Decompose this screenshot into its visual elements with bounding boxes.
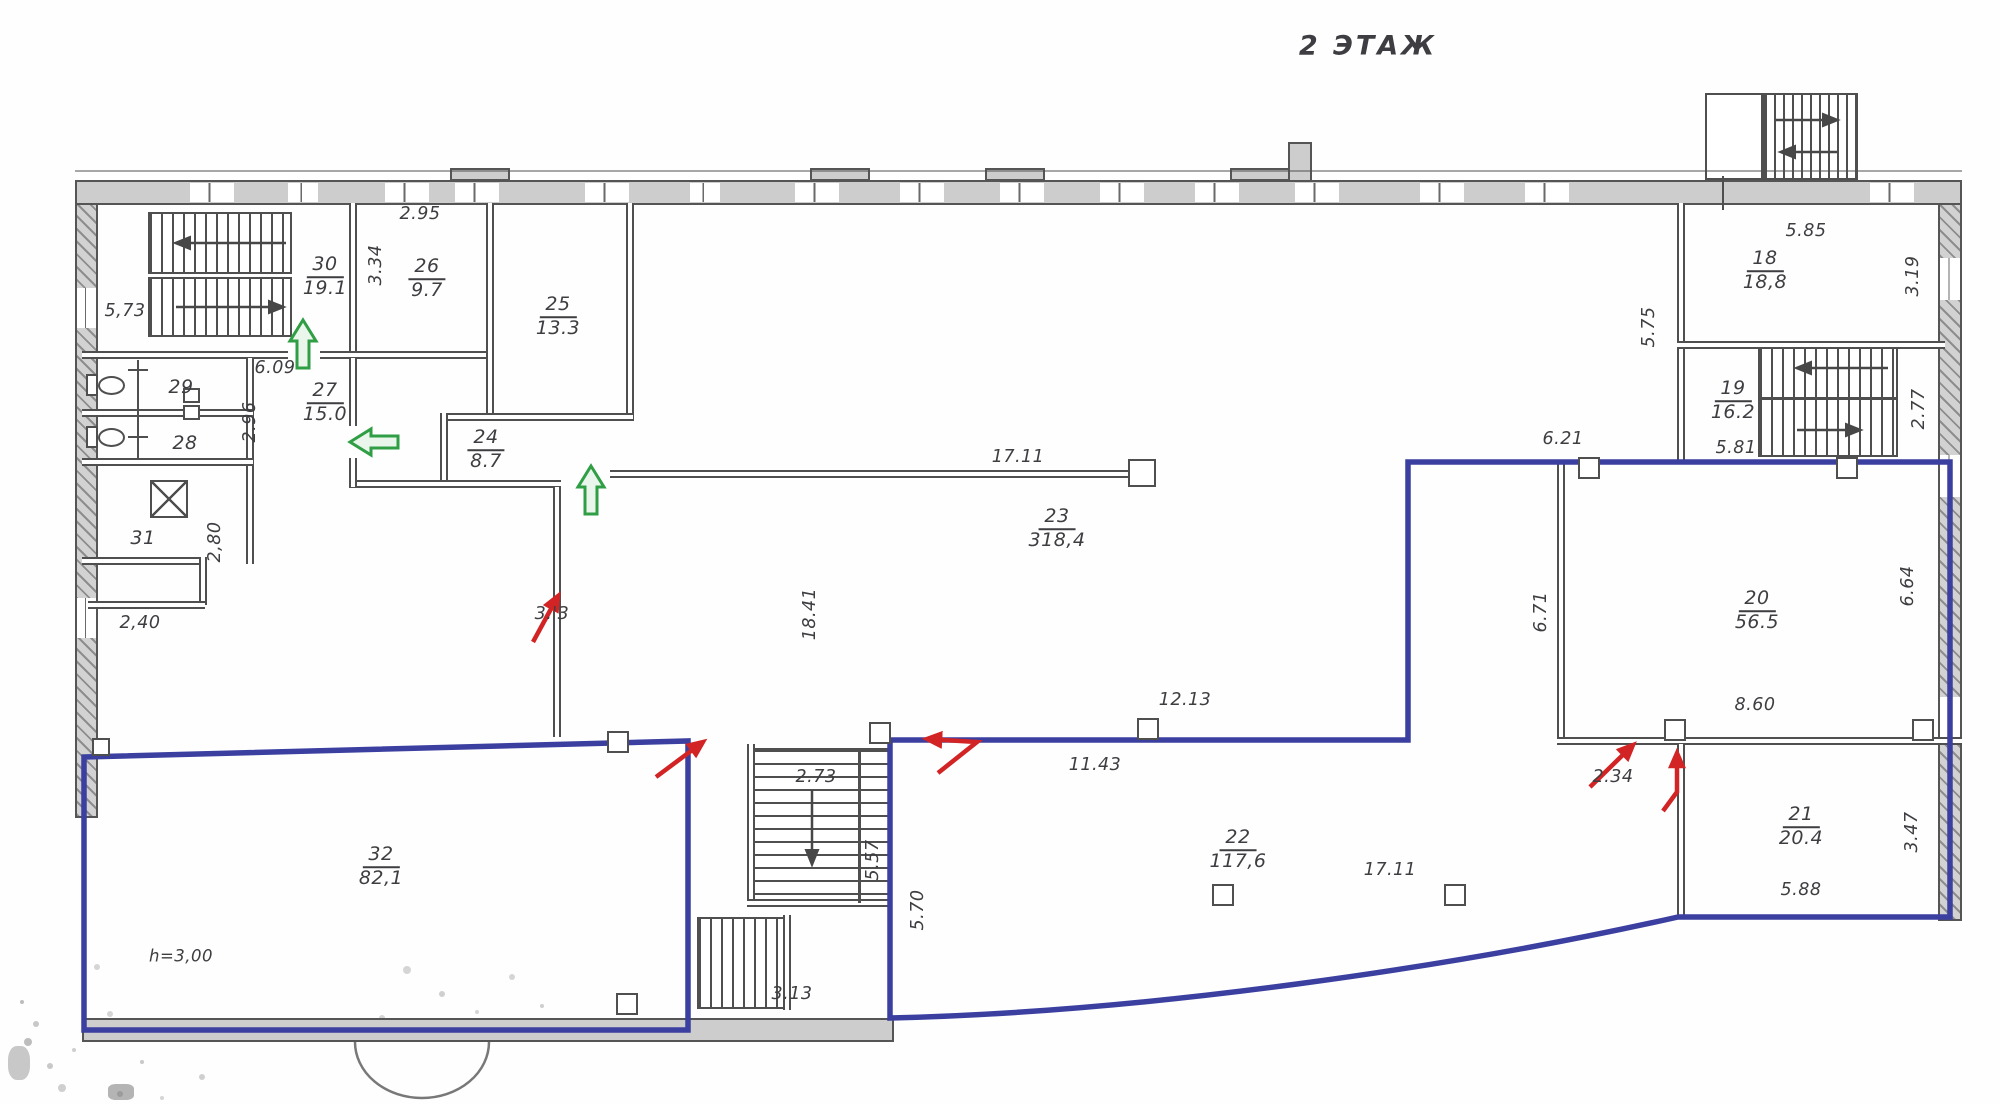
- dim-18-41: 18.41: [800, 588, 820, 641]
- annotation-overlay: [0, 0, 2000, 1104]
- column-marker: [1664, 719, 1686, 741]
- wall-end-marker: [1128, 459, 1156, 487]
- window: [1525, 183, 1569, 202]
- room-label-19: 19 16.2: [1711, 378, 1755, 424]
- staircase-room30-lower-flight: [148, 277, 292, 337]
- wall: [82, 409, 253, 417]
- window: [1940, 697, 1960, 739]
- window: [690, 183, 720, 202]
- window: [1940, 258, 1960, 300]
- dim-2-73: 2.73: [796, 767, 837, 787]
- window: [455, 183, 499, 202]
- dim-6-21: 6.21: [1543, 429, 1584, 449]
- column-marker: [616, 993, 638, 1015]
- red-arrow: [1663, 753, 1677, 811]
- wall: [610, 470, 1142, 478]
- dim-2-96: 2.96: [240, 402, 260, 443]
- wall: [486, 203, 494, 421]
- dim-5-75: 5.75: [1639, 307, 1659, 348]
- toilet-tank: [86, 426, 98, 448]
- red-arrow: [656, 742, 703, 777]
- wall: [349, 358, 357, 487]
- window: [288, 183, 318, 202]
- page-title: 2 ЭТАЖ: [1299, 31, 1437, 62]
- exterior-staircase: [1763, 93, 1858, 180]
- exterior-wall-right: [1938, 203, 1962, 921]
- wall: [82, 458, 253, 466]
- wall: [1677, 744, 1685, 918]
- dim-6-09: 6.09: [255, 358, 296, 378]
- room-label-22: 22 117,6: [1210, 827, 1267, 873]
- dim-2-34: 2.34: [1593, 767, 1634, 787]
- green-arrow-up: [578, 466, 604, 514]
- dim-8-60: 8.60: [1735, 695, 1776, 715]
- dim-2-80: 2,80: [205, 522, 225, 563]
- wall: [440, 413, 633, 421]
- dim-obscured: 3.'3: [535, 604, 570, 624]
- cistern-box: [183, 405, 200, 420]
- dim-6-71: 6.71: [1531, 592, 1551, 633]
- window: [1940, 455, 1960, 497]
- window: [385, 183, 429, 202]
- dim-5-88: 5.88: [1781, 880, 1822, 900]
- dim-2-77: 2.77: [1909, 389, 1929, 430]
- window: [900, 183, 944, 202]
- door-swing-arc: [355, 1042, 489, 1098]
- exterior-wall-bottom: [82, 1018, 894, 1042]
- room-label-30: 30 19.1: [303, 254, 347, 300]
- room-label-20: 20 56.5: [1735, 588, 1779, 634]
- wall: [626, 203, 634, 421]
- wall: [349, 203, 357, 358]
- column-marker: [1444, 884, 1466, 906]
- room-label-27: 27 15.0: [303, 380, 347, 426]
- wall: [440, 413, 448, 487]
- dim-5-85: 5.85: [1786, 221, 1827, 241]
- stair-landing-line: [1758, 397, 1898, 400]
- dim-3-47: 3.47: [1902, 812, 1922, 853]
- window-sill-line: [75, 170, 1962, 172]
- column-marker: [1137, 718, 1159, 740]
- dim-5-73: 5,73: [105, 301, 146, 321]
- column-marker: [92, 738, 110, 756]
- room-label-29: 29: [168, 376, 193, 398]
- red-arrow: [927, 739, 977, 773]
- shaft-symbol: [150, 480, 188, 518]
- room-label-28: 28: [172, 432, 197, 454]
- dim-2-40: 2,40: [120, 613, 161, 633]
- dim-3-13: 3.13: [772, 984, 813, 1004]
- scan-smudge: [108, 1084, 134, 1100]
- wall: [1557, 462, 1565, 744]
- column-marker: [1212, 884, 1234, 906]
- room-label-21: 21 20.4: [1779, 804, 1823, 850]
- dim-17-11-bottom: 17.11: [1364, 860, 1417, 880]
- dim-11-43: 11.43: [1069, 755, 1122, 775]
- wall: [747, 744, 755, 906]
- plumbing-tick: [128, 369, 148, 371]
- dim-12-13: 12.13: [1159, 690, 1212, 710]
- window: [1195, 183, 1239, 202]
- column-marker: [1836, 457, 1858, 479]
- dim-5-81: 5.81: [1716, 438, 1757, 458]
- toilet-tank: [86, 374, 98, 396]
- scan-smudge: [8, 1046, 30, 1080]
- wall: [82, 557, 206, 565]
- door-opening: [575, 478, 607, 490]
- room-label-24: 24 8.7: [467, 427, 504, 473]
- window: [585, 183, 629, 202]
- room-label-26: 26 9.7: [408, 256, 445, 302]
- wall: [1557, 737, 1962, 745]
- plumbing-tick: [128, 436, 148, 438]
- window: [1100, 183, 1144, 202]
- room-label-31: 31: [130, 527, 155, 549]
- wall: [88, 601, 205, 609]
- dim-6-64: 6.64: [1898, 566, 1918, 607]
- dim-5-57: 5.57: [863, 840, 883, 881]
- window: [1295, 183, 1339, 202]
- room-label-18: 18 18,8: [1743, 248, 1787, 294]
- dim-3-34: 3.34: [366, 245, 386, 286]
- window: [77, 288, 96, 328]
- dim-17-11-top: 17.11: [992, 447, 1045, 467]
- column-marker: [1578, 457, 1600, 479]
- room-label-23: 23 318,4: [1029, 506, 1086, 552]
- window: [1000, 183, 1044, 202]
- scan-noise: [20, 1000, 24, 1004]
- column-marker: [1912, 719, 1934, 741]
- staircase-room19: [1758, 347, 1898, 457]
- dim-5-70: 5.70: [908, 890, 928, 931]
- ceiling-height-note: h=3,00: [149, 947, 213, 966]
- room-label-32: 32 82,1: [359, 844, 403, 890]
- dim-3-19: 3.19: [1903, 256, 1923, 297]
- window: [1870, 183, 1914, 202]
- staircase-room30-upper-flight: [148, 212, 292, 274]
- window: [190, 183, 234, 202]
- wall: [199, 557, 207, 605]
- exterior-landing: [1705, 93, 1763, 180]
- room-label-25: 25 13.3: [536, 294, 580, 340]
- wall: [1677, 341, 1945, 349]
- wall: [349, 480, 561, 488]
- wall-stub: [1288, 142, 1312, 182]
- stair-divider-line: [858, 748, 861, 903]
- window: [795, 183, 839, 202]
- wall: [747, 899, 890, 907]
- toilet-bowl: [98, 376, 125, 395]
- wall: [1677, 203, 1685, 462]
- plumbing-riser-line: [137, 360, 139, 460]
- door-opening: [349, 426, 358, 458]
- dim-2-95: 2.95: [400, 204, 441, 224]
- column-marker: [607, 731, 629, 753]
- dimension-tick: [1722, 176, 1724, 210]
- window: [1420, 183, 1464, 202]
- floor-plan-scan: 2 ЭТАЖ: [0, 0, 2000, 1104]
- toilet-bowl: [98, 428, 125, 447]
- column-marker: [869, 722, 891, 744]
